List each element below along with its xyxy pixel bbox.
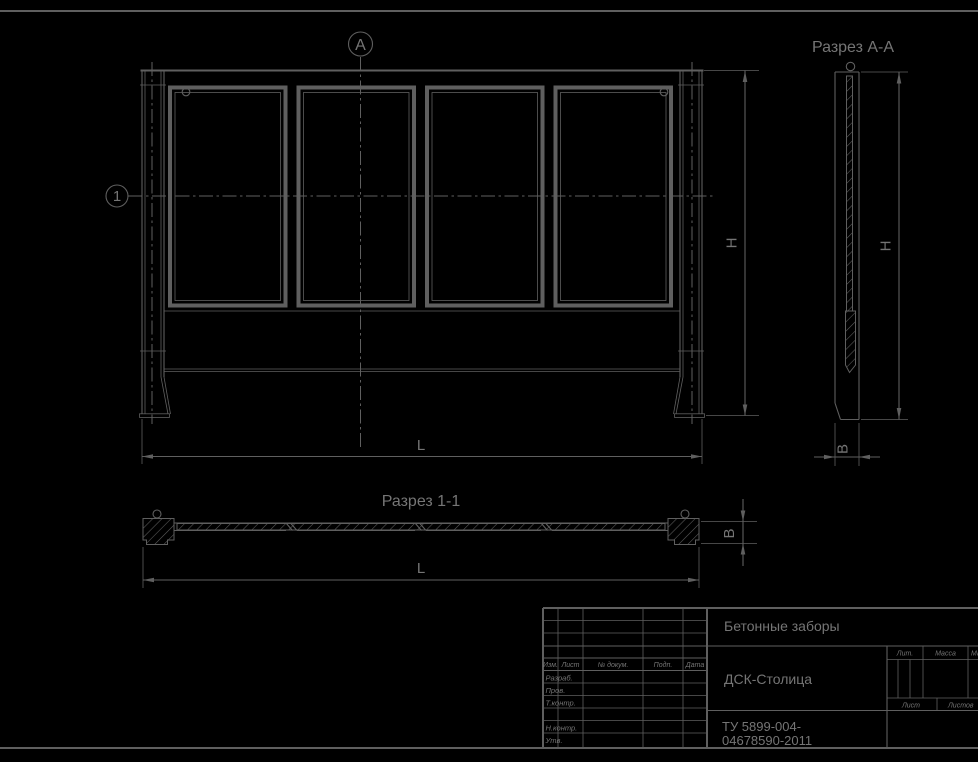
fence-panels	[164, 88, 680, 372]
arrowhead	[143, 578, 154, 583]
section-11-title: Разрез 1-1	[382, 493, 461, 510]
section-aa-title: Разрез А-А	[812, 39, 894, 56]
arrowhead	[691, 454, 702, 459]
col-label-docnum: № докум.	[598, 661, 629, 669]
arrowhead	[897, 73, 902, 84]
dim-label-l: L	[417, 437, 425, 454]
product-name: Бетонные заборы	[724, 618, 840, 634]
col-label-list: Лист	[560, 662, 579, 669]
section-a-marker-label: А	[355, 37, 366, 54]
arrowhead	[743, 71, 748, 82]
scale-label: Масштаб	[971, 650, 978, 658]
document-number-line2: 04678590-2011	[722, 733, 812, 748]
lifting-loop	[846, 62, 854, 70]
lit-label: Лит.	[896, 651, 913, 658]
col-label-podp: Подп.	[654, 661, 673, 669]
row-label-tkontr: Т.контр.	[546, 699, 576, 708]
arrowhead	[859, 455, 870, 460]
sheet-label: Лист	[901, 703, 920, 710]
section-aa-profile	[835, 62, 859, 419]
title-block: Изм. Лист № докум. Подп. Дата Разраб. Пр…	[543, 608, 978, 748]
bottom-rail-hatched	[846, 311, 856, 373]
drawing-sheet: А 1	[0, 0, 978, 762]
organization-name: ДСК-Столица	[724, 671, 812, 687]
section-aa-dim-b: В	[814, 423, 880, 466]
fence-post-left	[140, 62, 171, 424]
row-label-utv: Утв.	[545, 736, 563, 745]
document-number-line1: ТУ 5899-004-	[722, 719, 801, 734]
technical-drawing: А 1	[0, 0, 978, 762]
fence-post-right	[674, 62, 705, 424]
section-11-profile	[143, 510, 699, 545]
post-foot-cap	[675, 414, 705, 418]
col-label-data: Дата	[685, 662, 705, 669]
arrowhead	[688, 578, 699, 583]
section-11-view: Разрез 1-1 В	[143, 493, 757, 588]
arrowhead	[741, 544, 746, 555]
row-label-prov: Пров.	[546, 686, 566, 695]
front-dim-h: H	[704, 71, 759, 416]
arrowhead	[142, 454, 153, 459]
post-section-left-hatched	[143, 519, 174, 545]
front-dim-l: L	[142, 419, 702, 464]
arrowhead	[743, 405, 748, 416]
sheets-label: Листов	[947, 703, 974, 710]
lifting-loop-right	[681, 510, 689, 518]
foot-taper-line	[835, 403, 841, 420]
dim-label-h: H	[724, 238, 741, 249]
dim-label-b: В	[721, 528, 738, 538]
lifting-loop-left	[153, 510, 161, 518]
mass-label: Масса	[935, 651, 956, 658]
dim-label-b: В	[835, 444, 852, 454]
section-11-dim-l: L	[143, 547, 699, 588]
arrowhead	[897, 408, 902, 419]
post-foot-cap	[140, 414, 170, 418]
front-view: А 1	[106, 32, 759, 464]
sheet-frame	[0, 11, 978, 748]
post-section-right-hatched	[668, 519, 699, 545]
dim-label-h: H	[878, 241, 895, 252]
dim-label-l: L	[417, 560, 425, 577]
row-label-razrab: Разраб.	[546, 674, 573, 683]
row-label-nkontr: Н.контр.	[546, 724, 578, 733]
section-aa-dim-h: H	[861, 72, 908, 420]
panel-board-hatched	[847, 76, 853, 311]
arrowhead	[741, 511, 746, 522]
section-1-marker-label: 1	[113, 188, 121, 205]
col-label-izm: Изм.	[543, 662, 558, 669]
section-11-dim-b: В	[701, 499, 757, 566]
section-aa-view: Разрез А-А H В	[812, 39, 908, 466]
arrowhead	[824, 455, 835, 460]
